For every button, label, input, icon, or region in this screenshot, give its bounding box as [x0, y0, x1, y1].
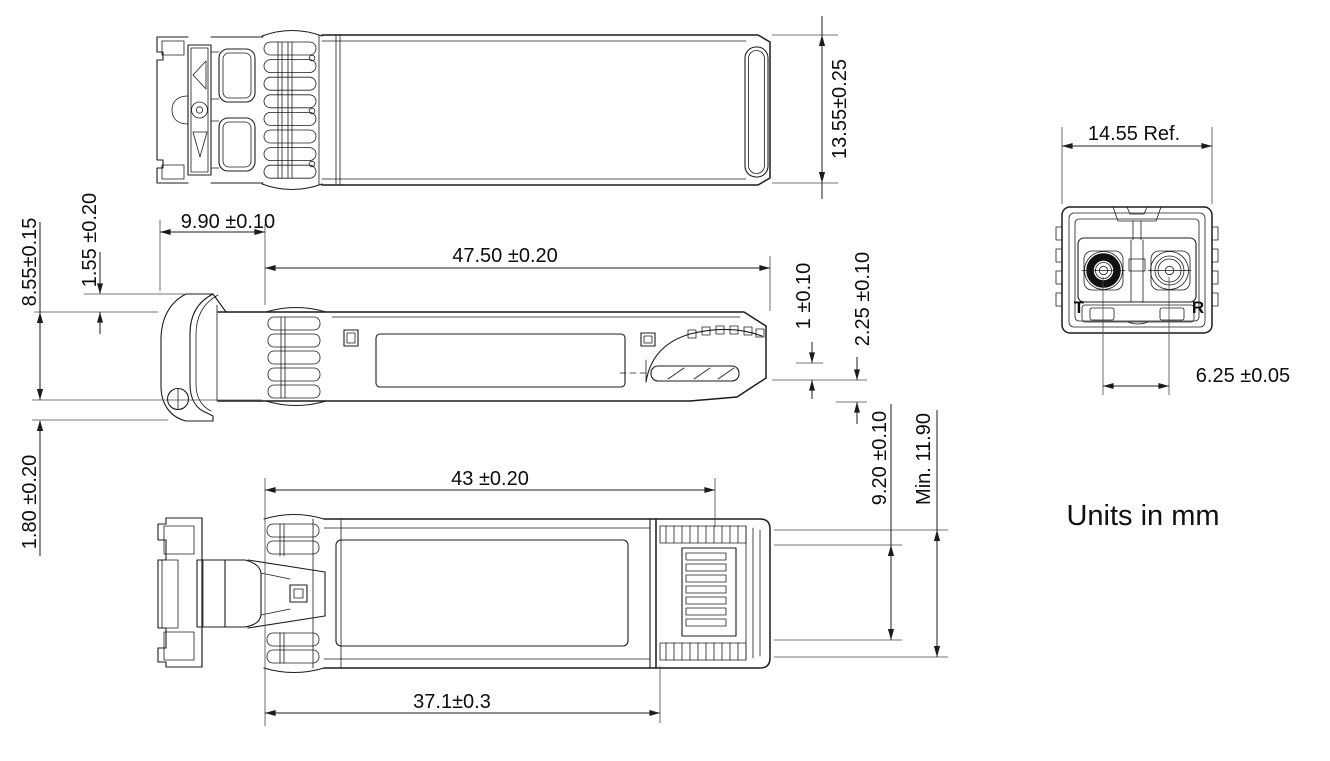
front-view: T R — [1056, 207, 1218, 333]
pcb-edge-connector — [650, 519, 770, 668]
sfp-transceiver-drawing: T R — [0, 0, 1330, 761]
top-latch-frame — [157, 37, 188, 183]
drawing-canvas: T R — [0, 0, 1330, 761]
extension-lines — [32, 35, 1212, 726]
dim-cage-length-label: 47.50 ±0.20 — [452, 245, 558, 267]
latch-arrow-up-icon — [193, 61, 206, 89]
side-view — [161, 294, 766, 421]
top-bail-arm — [219, 49, 255, 102]
bottom-bail — [158, 518, 325, 667]
latch-ramp — [646, 329, 762, 382]
label-recess — [376, 334, 625, 387]
front-bottom-bar — [1082, 305, 1194, 322]
emi-ribs — [264, 42, 316, 178]
dim-conn-length-label: 43 ±0.20 — [451, 468, 529, 490]
dim-port-pitch-label: 6.25 ±0.05 — [1196, 365, 1290, 387]
dimension-labels: 9.90 ±0.10 47.50 ±0.20 43 ±0.20 37.1±0.3… — [19, 59, 1290, 713]
dim-end-step-label: 1 ±0.10 — [793, 263, 815, 330]
top-view — [157, 31, 770, 190]
side-clip — [641, 333, 655, 346]
dim-top-height-label: 13.55±0.25 — [829, 59, 851, 159]
dim-conn-inner-height-label: 9.20 ±0.10 — [869, 411, 891, 505]
side-bail — [161, 294, 213, 421]
rx-port-label: R — [1192, 298, 1204, 317]
dim-conn-outer-height-label: Min. 11.90 — [913, 413, 935, 505]
top-body — [322, 35, 770, 185]
latch-arrow-down-icon — [193, 132, 207, 157]
bail-pin — [290, 585, 307, 602]
units-note: Units in mm — [1066, 500, 1219, 532]
bottom-emi-ribs — [267, 524, 319, 663]
dim-bail-above-label: 1.55 ±0.20 — [79, 193, 101, 287]
emi-spring-top — [262, 31, 322, 37]
pivot-icon — [192, 102, 208, 118]
top-bail-arm — [219, 118, 255, 171]
bail-arm — [248, 560, 325, 628]
dim-front-width-label: 14.55 Ref. — [1088, 123, 1180, 145]
dim-end-tail-label: 2.25 ±0.10 — [852, 252, 874, 346]
tx-port — [1082, 252, 1125, 290]
side-emi-ribs — [268, 317, 320, 398]
tx-port-label: T — [1074, 298, 1085, 317]
dim-finger-length-label: 37.1±0.3 — [413, 691, 491, 713]
rx-port — [1148, 252, 1191, 290]
bottom-label-recess — [336, 540, 628, 646]
bottom-view — [158, 515, 770, 673]
side-clip — [344, 330, 358, 346]
gold-fingers — [682, 548, 736, 636]
finger-pads — [686, 553, 726, 626]
dim-nose-length-label: 9.90 ±0.10 — [181, 211, 275, 233]
dim-bail-below-label: 1.80 ±0.20 — [19, 455, 41, 549]
dim-body-height-label: 8.55±0.15 — [19, 218, 41, 307]
side-body — [218, 312, 766, 401]
